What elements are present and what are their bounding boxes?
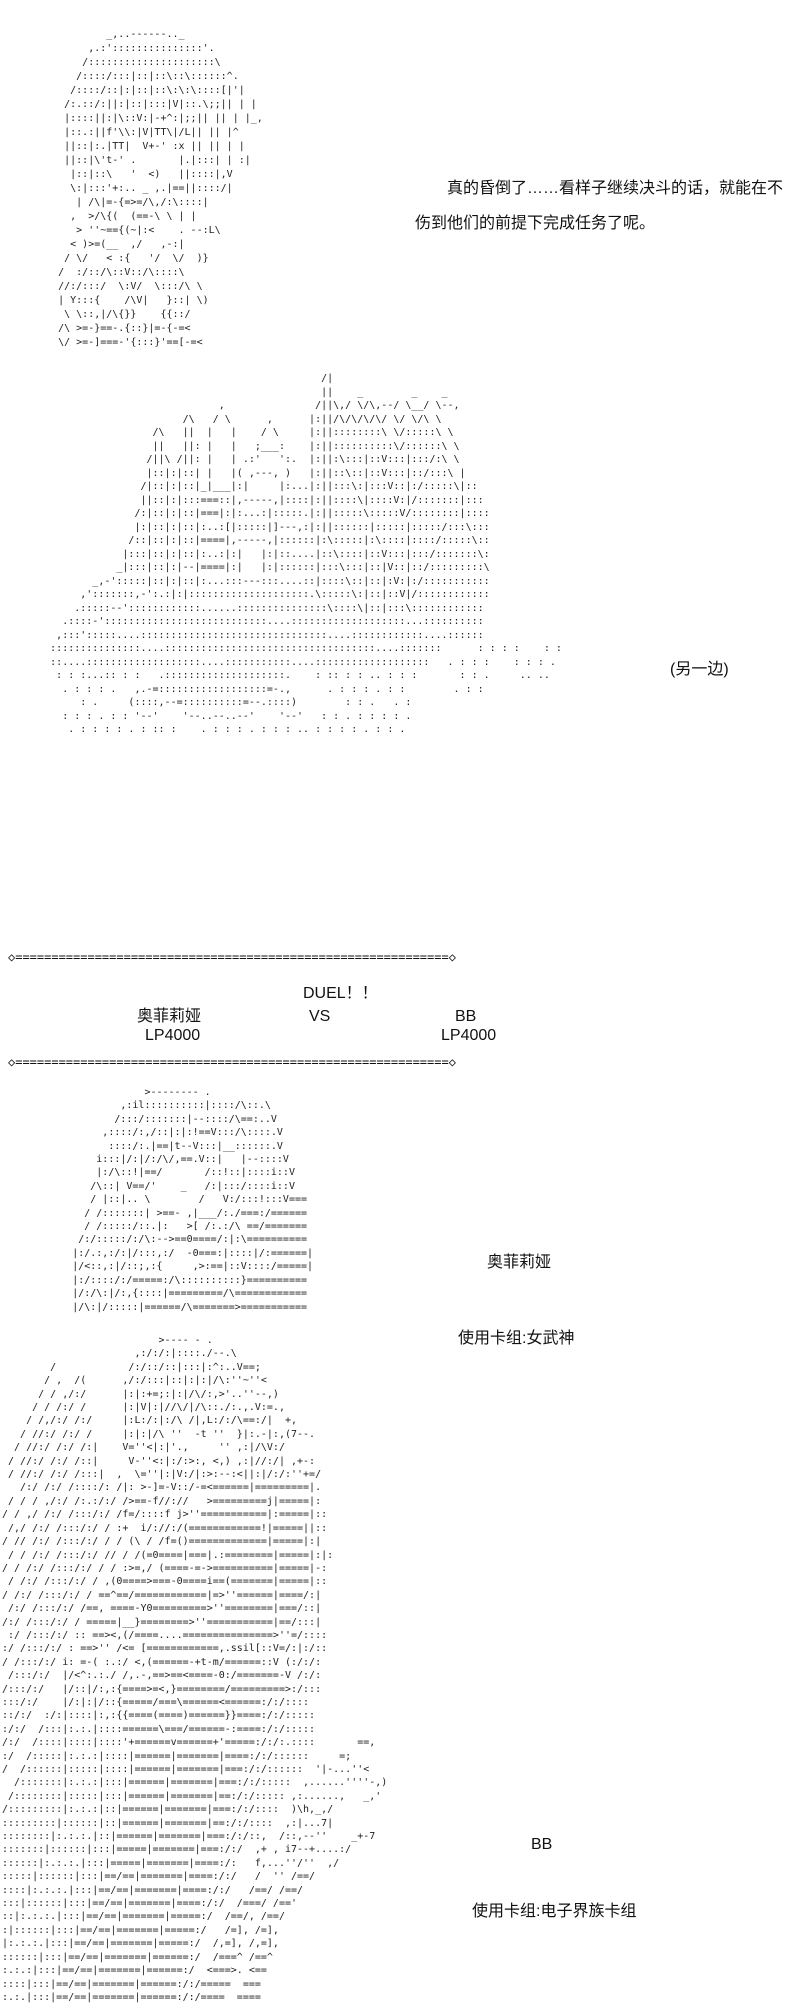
right-duelist-deck: 使用卡组:电子界族卡组 <box>472 1902 636 1922</box>
duel-title: DUEL！！ <box>303 984 378 1004</box>
player-left-lp: LP4000 <box>145 1026 200 1046</box>
vs-label: VS <box>309 1007 330 1027</box>
right-duelist-name: BB <box>531 1835 552 1855</box>
left-duelist-name: 奥菲莉娅 <box>487 1253 551 1273</box>
left-duelist-deck: 使用卡组:女武神 <box>458 1329 574 1349</box>
ascii-art-castle-scene: /| || _ _ _ , /||\,/ \/\,--/ \__/ \--, /… <box>2 372 562 737</box>
dialogue-line-1: 真的昏倒了……看样子继续决斗的话，就能在不 <box>447 179 783 199</box>
thread-page: { "page": { "background": "#ffffff", "te… <box>0 0 800 2000</box>
player-left-name: 奥菲莉娅 <box>137 1007 201 1027</box>
player-right-lp: LP4000 <box>441 1026 496 1046</box>
ascii-art-bb-portrait: >---- - . ,:/:/:|::::./--.\ / /:/::/::|:… <box>2 1334 387 2004</box>
aside-note: (另一边) <box>670 660 729 680</box>
player-right-name: BB <box>455 1007 476 1027</box>
ascii-art-ophelia-portrait: >-------- . ,:il::::::::::|::::/\::.\ /:… <box>12 1086 313 1314</box>
dialogue-line-2: 伤到他们的前提下完成任务了呢。 <box>415 214 655 234</box>
ascii-art-fainted-girl: _,..------.._ ,.:':::::::::::::::'. /:::… <box>28 28 263 350</box>
duel-banner-divider-top: ◇=======================================… <box>8 951 456 963</box>
duel-banner-divider-bottom: ◇=======================================… <box>8 1056 456 1068</box>
